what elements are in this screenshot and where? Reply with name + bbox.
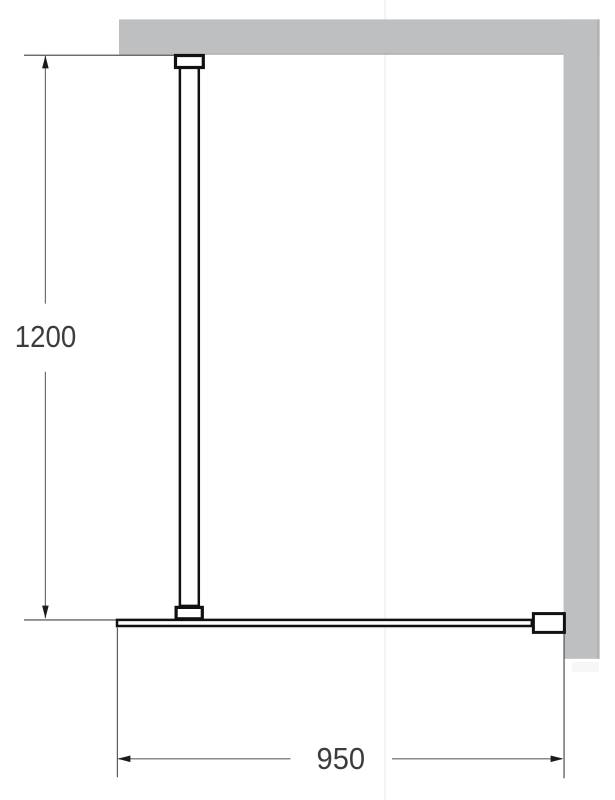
svg-text:1200: 1200: [15, 320, 77, 354]
svg-text:950: 950: [317, 742, 366, 776]
